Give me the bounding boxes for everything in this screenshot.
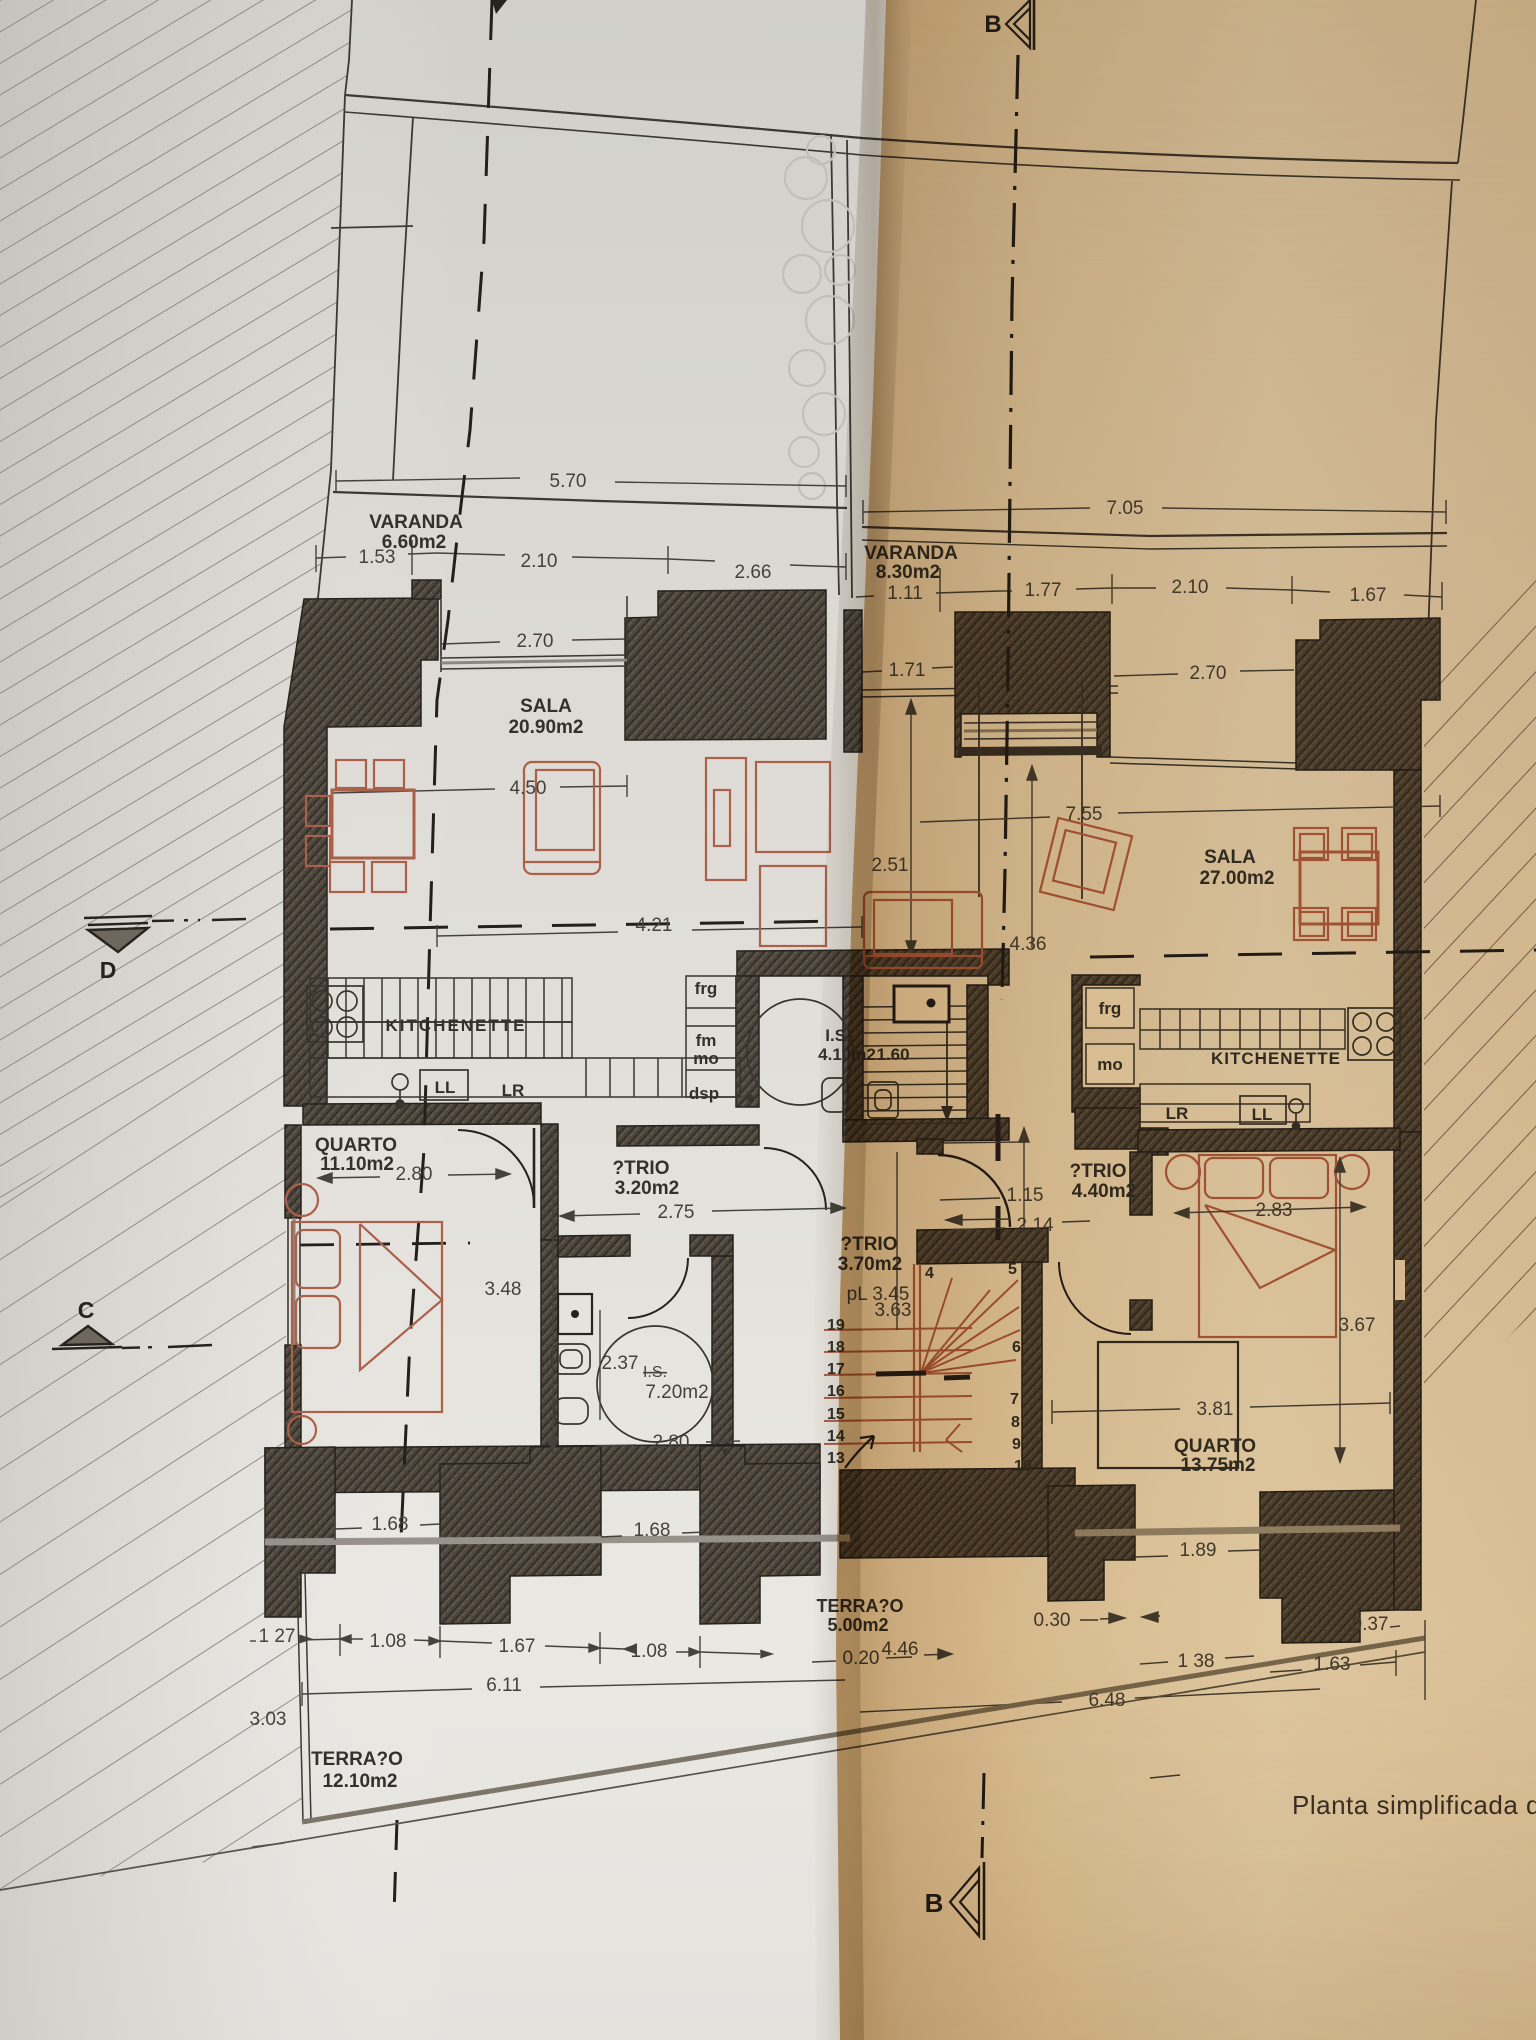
svg-text:2.80: 2.80 xyxy=(396,1164,433,1185)
svg-text:3.48: 3.48 xyxy=(485,1279,522,1300)
svg-text:2.66: 2.66 xyxy=(735,562,772,583)
svg-text:I.S.: I.S. xyxy=(643,1364,667,1381)
svg-text:1.68: 1.68 xyxy=(372,1514,409,1535)
svg-text:7.20m2: 7.20m2 xyxy=(645,1382,708,1403)
svg-text:dsp: dsp xyxy=(689,1084,719,1103)
svg-text:LL: LL xyxy=(435,1078,456,1097)
svg-text:11.10m2: 11.10m2 xyxy=(320,1154,394,1175)
svg-text:3.03: 3.03 xyxy=(250,1709,287,1730)
svg-text:?TRIO: ?TRIO xyxy=(613,1158,670,1179)
svg-text:1.08: 1.08 xyxy=(370,1631,407,1652)
svg-text:1.67: 1.67 xyxy=(499,1636,536,1657)
svg-text:SALA: SALA xyxy=(520,696,572,717)
svg-text:C: C xyxy=(78,1297,95,1323)
svg-text:2.75: 2.75 xyxy=(658,1202,695,1223)
svg-text:frg: frg xyxy=(695,979,718,998)
svg-text:3.20m2: 3.20m2 xyxy=(615,1178,679,1199)
svg-text:KITCHENETTE: KITCHENETTE xyxy=(386,1016,527,1035)
svg-text:20.90m2: 20.90m2 xyxy=(508,717,583,738)
svg-text:1.53: 1.53 xyxy=(359,547,396,568)
svg-text:VARANDA: VARANDA xyxy=(369,512,463,533)
svg-text:fm: fm xyxy=(696,1031,717,1050)
svg-text:4.21: 4.21 xyxy=(636,915,673,936)
svg-text:2.10: 2.10 xyxy=(521,551,558,572)
svg-text:4.50: 4.50 xyxy=(510,778,547,799)
svg-text:mo: mo xyxy=(693,1049,719,1068)
svg-text:2.70: 2.70 xyxy=(517,631,554,652)
svg-text:12.10m2: 12.10m2 xyxy=(322,1771,397,1792)
svg-text:2.80: 2.80 xyxy=(653,1432,690,1453)
svg-text:1 27: 1 27 xyxy=(259,1626,296,1647)
svg-text:2.37: 2.37 xyxy=(602,1353,639,1374)
svg-text:TERRA?O: TERRA?O xyxy=(311,1749,403,1770)
svg-text:1.08: 1.08 xyxy=(631,1641,668,1662)
svg-text:1.68: 1.68 xyxy=(634,1520,671,1541)
svg-text:5.70: 5.70 xyxy=(550,471,587,492)
svg-text:LR: LR xyxy=(502,1081,525,1100)
svg-text:QUARTO: QUARTO xyxy=(315,1135,397,1156)
svg-text:6.11: 6.11 xyxy=(486,1675,522,1696)
svg-text:D: D xyxy=(100,957,117,983)
